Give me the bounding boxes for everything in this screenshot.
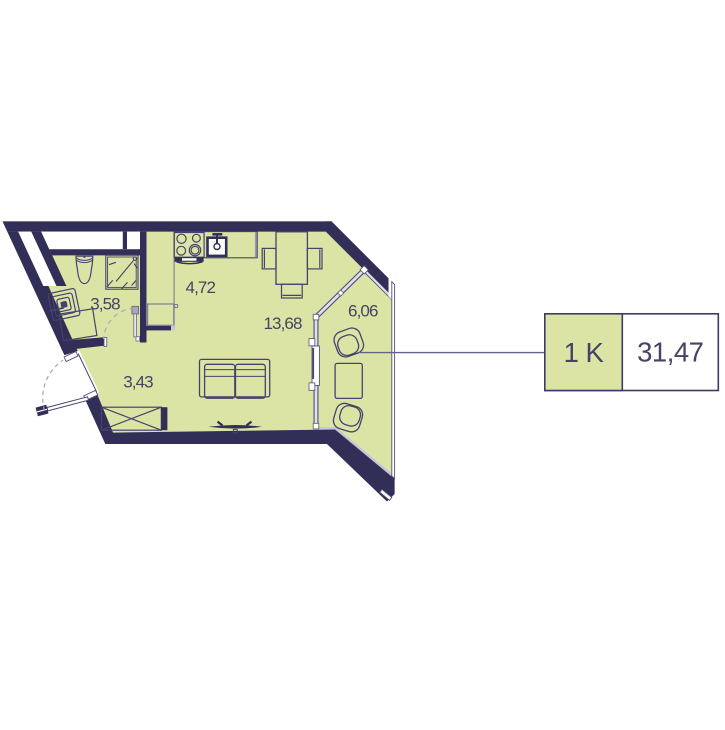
svg-text:3,58: 3,58 <box>90 295 120 314</box>
svg-text:6,06: 6,06 <box>348 301 378 320</box>
svg-text:13,68: 13,68 <box>263 314 301 333</box>
svg-text:3,43: 3,43 <box>123 373 153 392</box>
svg-text:4,72: 4,72 <box>186 278 216 297</box>
svg-text:1 K: 1 K <box>564 337 605 368</box>
svg-text:31,47: 31,47 <box>637 336 703 367</box>
